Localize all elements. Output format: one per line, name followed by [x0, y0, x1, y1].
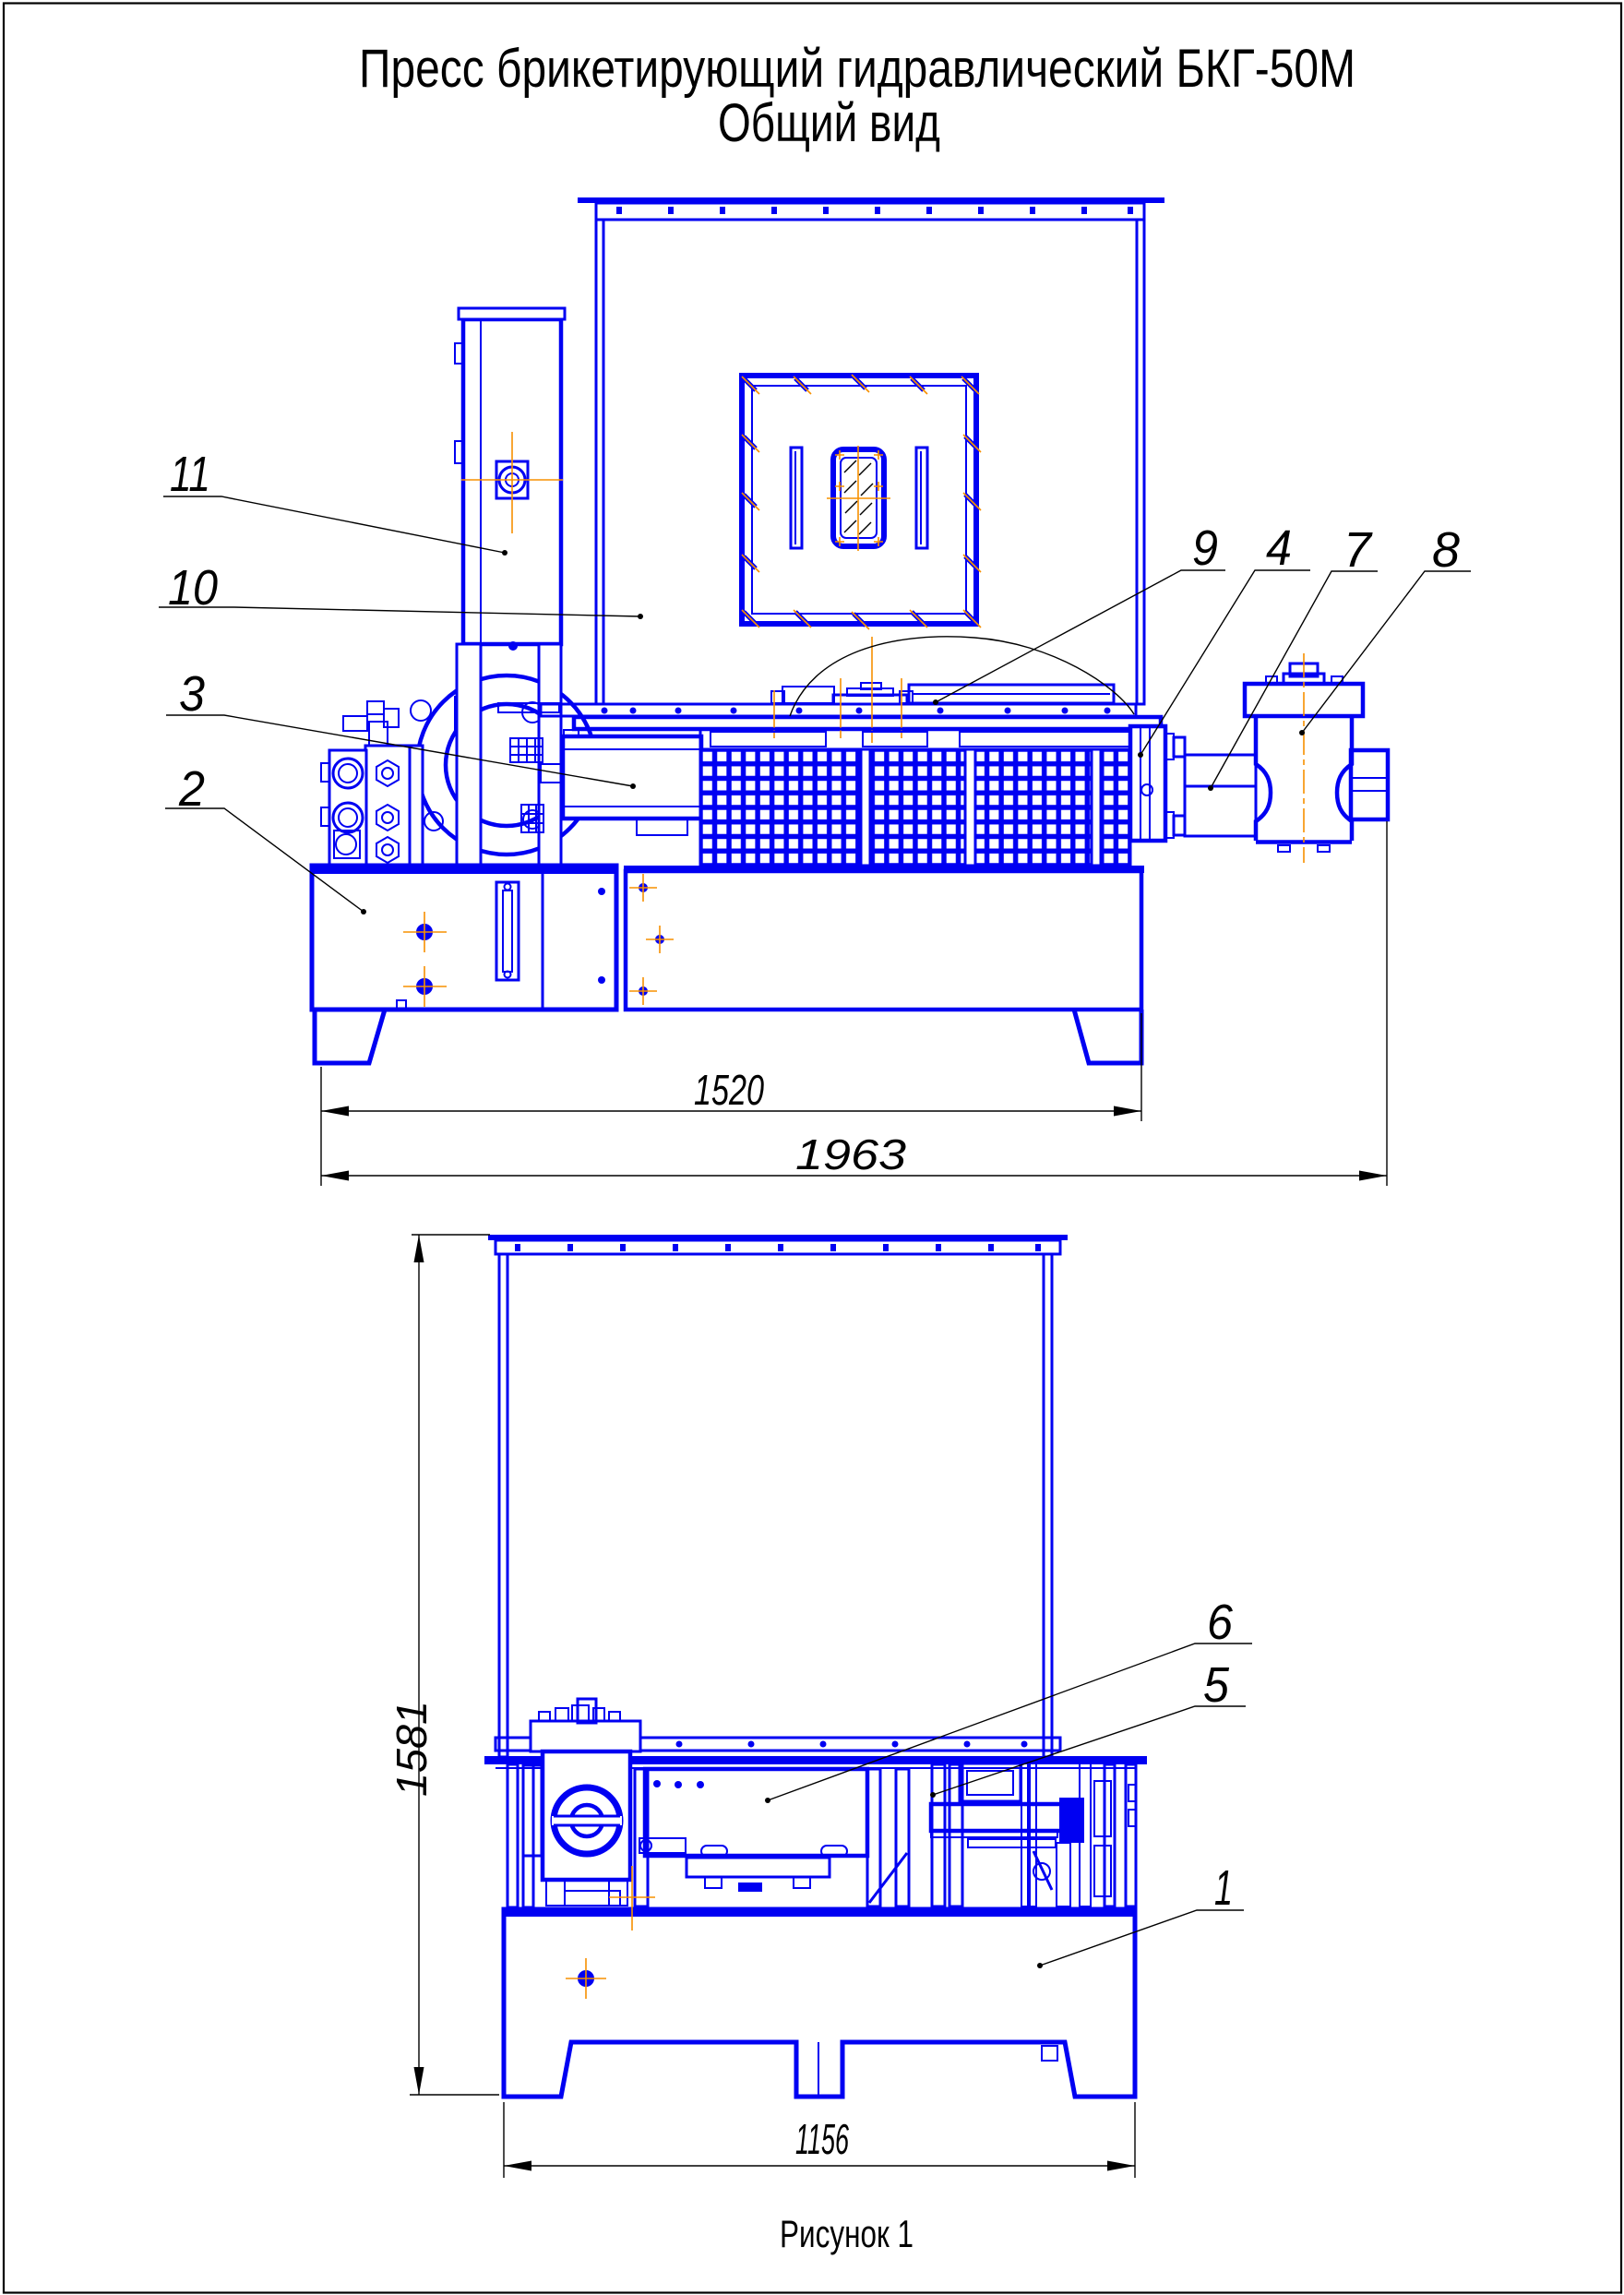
- svg-text:5: 5: [1203, 1657, 1230, 1713]
- svg-text:7: 7: [1343, 522, 1373, 578]
- svg-text:6: 6: [1207, 1595, 1234, 1650]
- svg-text:9: 9: [1192, 520, 1218, 576]
- svg-text:Пресс брикетирующий гидравличе: Пресс брикетирующий гидравлический БКГ-5…: [359, 39, 1355, 99]
- svg-text:3: 3: [179, 666, 205, 722]
- svg-text:8: 8: [1432, 522, 1460, 578]
- svg-text:11: 11: [170, 447, 210, 502]
- svg-text:Общий вид: Общий вид: [718, 93, 940, 153]
- svg-text:1581: 1581: [388, 1701, 436, 1797]
- svg-text:4: 4: [1266, 520, 1292, 576]
- svg-text:Рисунок 1: Рисунок 1: [780, 2212, 913, 2255]
- svg-text:1156: 1156: [795, 2115, 849, 2163]
- svg-text:1963: 1963: [795, 1130, 906, 1178]
- svg-text:1: 1: [1214, 1860, 1233, 1916]
- svg-text:1520: 1520: [694, 1066, 764, 1114]
